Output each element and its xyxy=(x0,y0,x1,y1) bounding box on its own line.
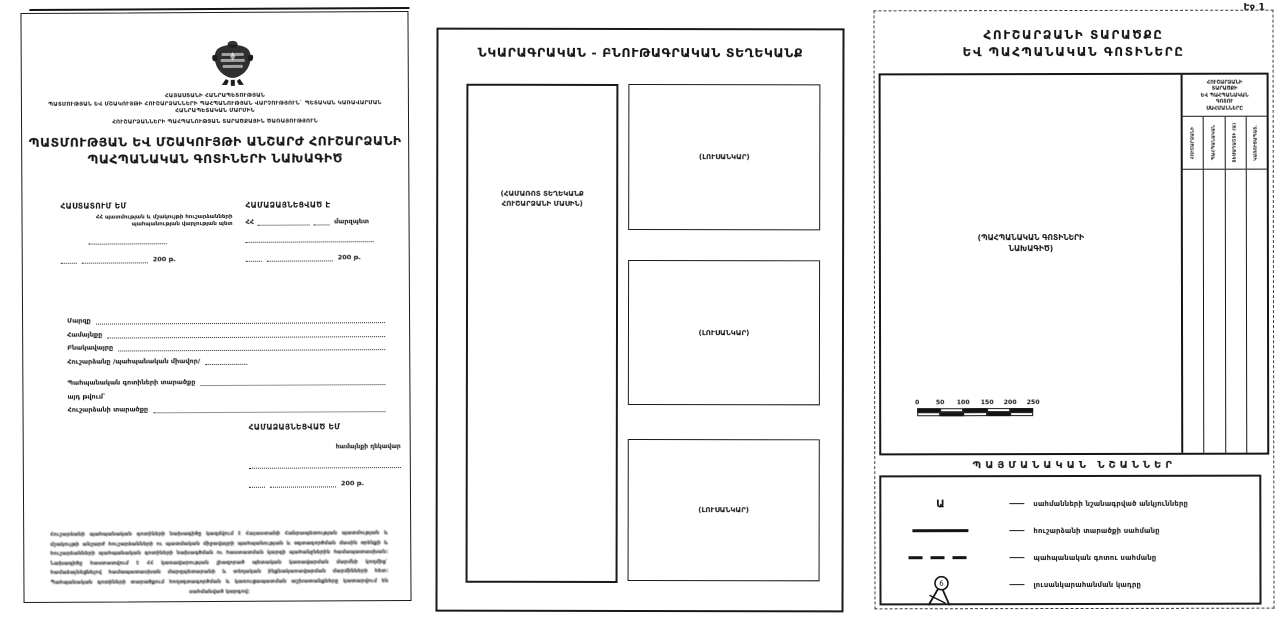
signature-line xyxy=(89,243,167,244)
field-line xyxy=(205,356,247,364)
brief-info-label: (ՀԱՄԱՌՈՏ ՏԵՂԵԿԱՆՔ ՀՈՒՇԱՐՁԱՆԻ ՄԱՍԻՆ) xyxy=(468,190,616,209)
legend-title: ՊԱՅՄԱՆԱԿԱՆ ՆՇԱՆՆԵՐ xyxy=(875,460,1273,472)
legend-separator xyxy=(999,557,1033,558)
brief-info-box: (ՀԱՄԱՌՈՏ ՏԵՂԵԿԱՆՔ ՀՈՒՇԱՐՁԱՆԻ ՄԱՍԻՆ) xyxy=(466,84,619,583)
field-zones-area: Պահպանական գոտիների տարածքը xyxy=(67,377,385,387)
zone-table-header: ՀՈՒՇԱՐՁԱՆԻ ՏԱՐԱԾՔԻ ԵՎ ՊԱՀՊԱՆԱԿԱՆ ԳՈՏՈՒ Ս… xyxy=(1183,75,1267,117)
field-line xyxy=(96,315,385,325)
agree-heading: ՀԱՄԱՁԱՅՆԵՑՎԱԾ ԵՄ xyxy=(249,422,401,432)
legend-separator xyxy=(999,530,1033,531)
letter-a-marker-icon: Ա xyxy=(936,498,945,510)
field-line xyxy=(118,342,385,351)
legend-separator xyxy=(999,584,1033,585)
middle-page-title: ՆԿԱՐԱԳՐԱԿԱՆ - ԲՆՈՒԹԱԳՐԱԿԱՆ ՏԵՂԵԿԱՆՔ xyxy=(438,45,842,61)
signature-line xyxy=(246,241,374,243)
field-settlement: Բնակավայրը xyxy=(67,342,385,352)
zone-column: ՊԱՀՊԱՆԱԿԱՆ xyxy=(1204,117,1225,169)
signature-line xyxy=(249,467,401,469)
field-line xyxy=(107,329,385,338)
field-monument: Հուշարձանը /պահպանական միավոր/ xyxy=(67,356,385,366)
legend-box: Ա սահմանների նշանագրված անկյունները հուշ… xyxy=(879,475,1261,606)
issuing-authority-lines: ՀԱՅԱՍՏԱՆԻ ՀԱՆՐԱՊԵՏՈՒԹՅԱՆ ՊԱՏՄՈՒԹՅԱՆ ԵՎ Մ… xyxy=(30,92,400,127)
armenia-coat-of-arms-icon xyxy=(210,39,256,87)
approve-heading: ՀԱՍՏԱՏՈՒՄ ԵՄ xyxy=(60,201,232,211)
document-title: ՊԱՏՄՈՒԹՅԱՆ ԵՎ ՄՇԱԿՈՒՅԹԻ ԱՆՇԱՐԺ ՀՈՒՇԱՐՁԱՆ… xyxy=(28,132,402,168)
approver-title: ՀՀ պատմության և մշակույթի հուշարձանների … xyxy=(61,214,233,229)
approval-block-left: ՀԱՍՏԱՏՈՒՄ ԵՄ ՀՀ պատմության և մշակույթի հ… xyxy=(60,201,232,264)
approval-block-right: ՀԱՄԱՁԱՅՆԵՑՎԱԾ Է ՀՀ մարզպետ 200 թ. xyxy=(245,200,397,262)
date-suffix: 200 թ. xyxy=(338,253,361,261)
dashed-line-icon xyxy=(908,556,972,559)
scanned-document: Էջ 1 ՀԱՅԱՍՏԱՆԻ ՀԱՆՐԱՊԵՏՈՒԹՅԱՆ ՊԱՏՄՈՒԹՅԱՆ… xyxy=(0,0,1281,617)
form-fields: Մարզը Համայնքը Բնակավայրը Հուշարձանը /պա… xyxy=(67,315,386,419)
scale-bar-segments xyxy=(917,408,1035,416)
plan-drawing-area: ՀՈՒՇԱՐՁԱՆԻ ՏԱՐԱԾՔԻ ԵՎ ՊԱՀՊԱՆԱԿԱՆ ԳՈՏՈՒ Ս… xyxy=(879,73,1270,456)
role-label: մարզպետ xyxy=(334,217,369,225)
map-scale-bar: 0 50 100 150 200 250 xyxy=(917,399,1035,416)
legend-item-monument-boundary: հուշարձանի տարածքի սահմանը xyxy=(881,517,1259,545)
camera-tripod-icon: 6 xyxy=(925,575,955,609)
right-page-title: ՀՈՒՇԱՐՁԱՆԻ ՏԱՐԱԾՔԸ ԵՎ ՊԱՀՊԱՆԱԿԱՆ ԳՈՏԻՆԵՐ… xyxy=(875,27,1273,62)
zone-column: ՏԵՍԱԴԱՇՏԻ (Ա) xyxy=(1225,117,1246,169)
zone-column: ՀՈՒՇԱՐՁԱՆԻ xyxy=(1183,117,1204,169)
fine-print-note: Հուշարձանի պահպանական գոտիների նախագիծը … xyxy=(50,529,388,598)
community-agreement-block: ՀԱՄԱՁԱՅՆԵՑՎԱԾ ԵՄ համայնքի ղեկավար 200 թ. xyxy=(249,422,401,488)
date-line: 200 թ. xyxy=(249,479,401,488)
zone-boundaries-table: ՀՈՒՇԱՐՁԱՆԻ ՏԱՐԱԾՔԻ ԵՎ ՊԱՀՊԱՆԱԿԱՆ ԳՈՏՈՒ Ս… xyxy=(1181,75,1268,453)
date-suffix: 200 թ. xyxy=(341,479,364,487)
authority-line: ՊԱՏՄՈՒԹՅԱՆ ԵՎ ՄՇԱԿՈՒՅԹԻ ՀՈՒՇԱՐՁԱՆՆԵՐԻ ՊԱ… xyxy=(30,100,400,117)
svg-text:6: 6 xyxy=(939,579,944,587)
authority-line: ՀՈՒՇԱՐՁԱՆՆԵՐԻ ՊԱՀՊԱՆՈՒԹՅԱՆ ՏԱՐԱԾՔԱՅԻՆ ԾԱ… xyxy=(30,118,400,127)
photo-placeholder-3: (ԼՈՒՍԱՆԿԱՐ) xyxy=(628,439,820,581)
governor-line: ՀՀ մարզպետ xyxy=(246,217,398,226)
field-including: այդ թվում` xyxy=(67,391,385,401)
zone-table-empty-rows xyxy=(1183,170,1267,453)
solid-line-icon xyxy=(912,529,968,532)
date-suffix: 200 թ. xyxy=(153,255,176,263)
photo-placeholder-1: (ԼՈՒՍԱՆԿԱՐ) xyxy=(628,84,820,230)
role-label: համայնքի ղեկավար xyxy=(249,443,401,451)
zone-column: ԿԱՌՈՒՑԱՊԱՏ. xyxy=(1246,117,1266,169)
zones-plan-page: ՀՈՒՇԱՐՁԱՆԻ ՏԱՐԱԾՔԸ ԵՎ ՊԱՀՊԱՆԱԿԱՆ ԳՈՏԻՆԵՐ… xyxy=(873,10,1274,610)
legend-item-corner-letters: Ա սահմանների նշանագրված անկյունները xyxy=(881,490,1259,518)
zone-table-columns: ՀՈՒՇԱՐՁԱՆԻ ՊԱՀՊԱՆԱԿԱՆ ՏԵՍԱԴԱՇՏԻ (Ա) ԿԱՌՈ… xyxy=(1183,117,1267,170)
scale-tick-labels: 0 50 100 150 200 250 xyxy=(917,399,1035,408)
legend-separator xyxy=(999,503,1033,504)
date-line: 200 թ. xyxy=(61,255,233,264)
plan-placeholder-label: (ՊԱՀՊԱՆԱԿԱՆ ԳՈՏԻՆԵՐԻ ՆԱԽԱԳԻԾ) xyxy=(881,233,1181,255)
field-line xyxy=(200,377,385,386)
field-monument-area: Հուշարձանի տարածքը xyxy=(68,404,386,414)
agree-heading: ՀԱՄԱՁԱՅՆԵՑՎԱԾ Է xyxy=(245,200,397,210)
legend-item-photo-frame: 6 լուսանկարահանման կադրը xyxy=(881,571,1259,599)
descriptive-reference-page: ՆԿԱՐԱԳՐԱԿԱՆ - ԲՆՈՒԹԱԳՐԱԿԱՆ ՏԵՂԵԿԱՆՔ (ՀԱՄ… xyxy=(435,28,844,613)
field-region: Մարզը xyxy=(67,315,385,325)
title-approval-page: ՀԱՅԱՍՏԱՆԻ ՀԱՆՐԱՊԵՏՈՒԹՅԱՆ ՊԱՏՄՈՒԹՅԱՆ ԵՎ Մ… xyxy=(20,11,411,603)
field-community: Համայնքը xyxy=(67,329,385,339)
photo-placeholder-2: (ԼՈՒՍԱՆԿԱՐ) xyxy=(628,260,820,405)
date-line: 200 թ. xyxy=(246,253,398,262)
field-line xyxy=(153,404,385,413)
